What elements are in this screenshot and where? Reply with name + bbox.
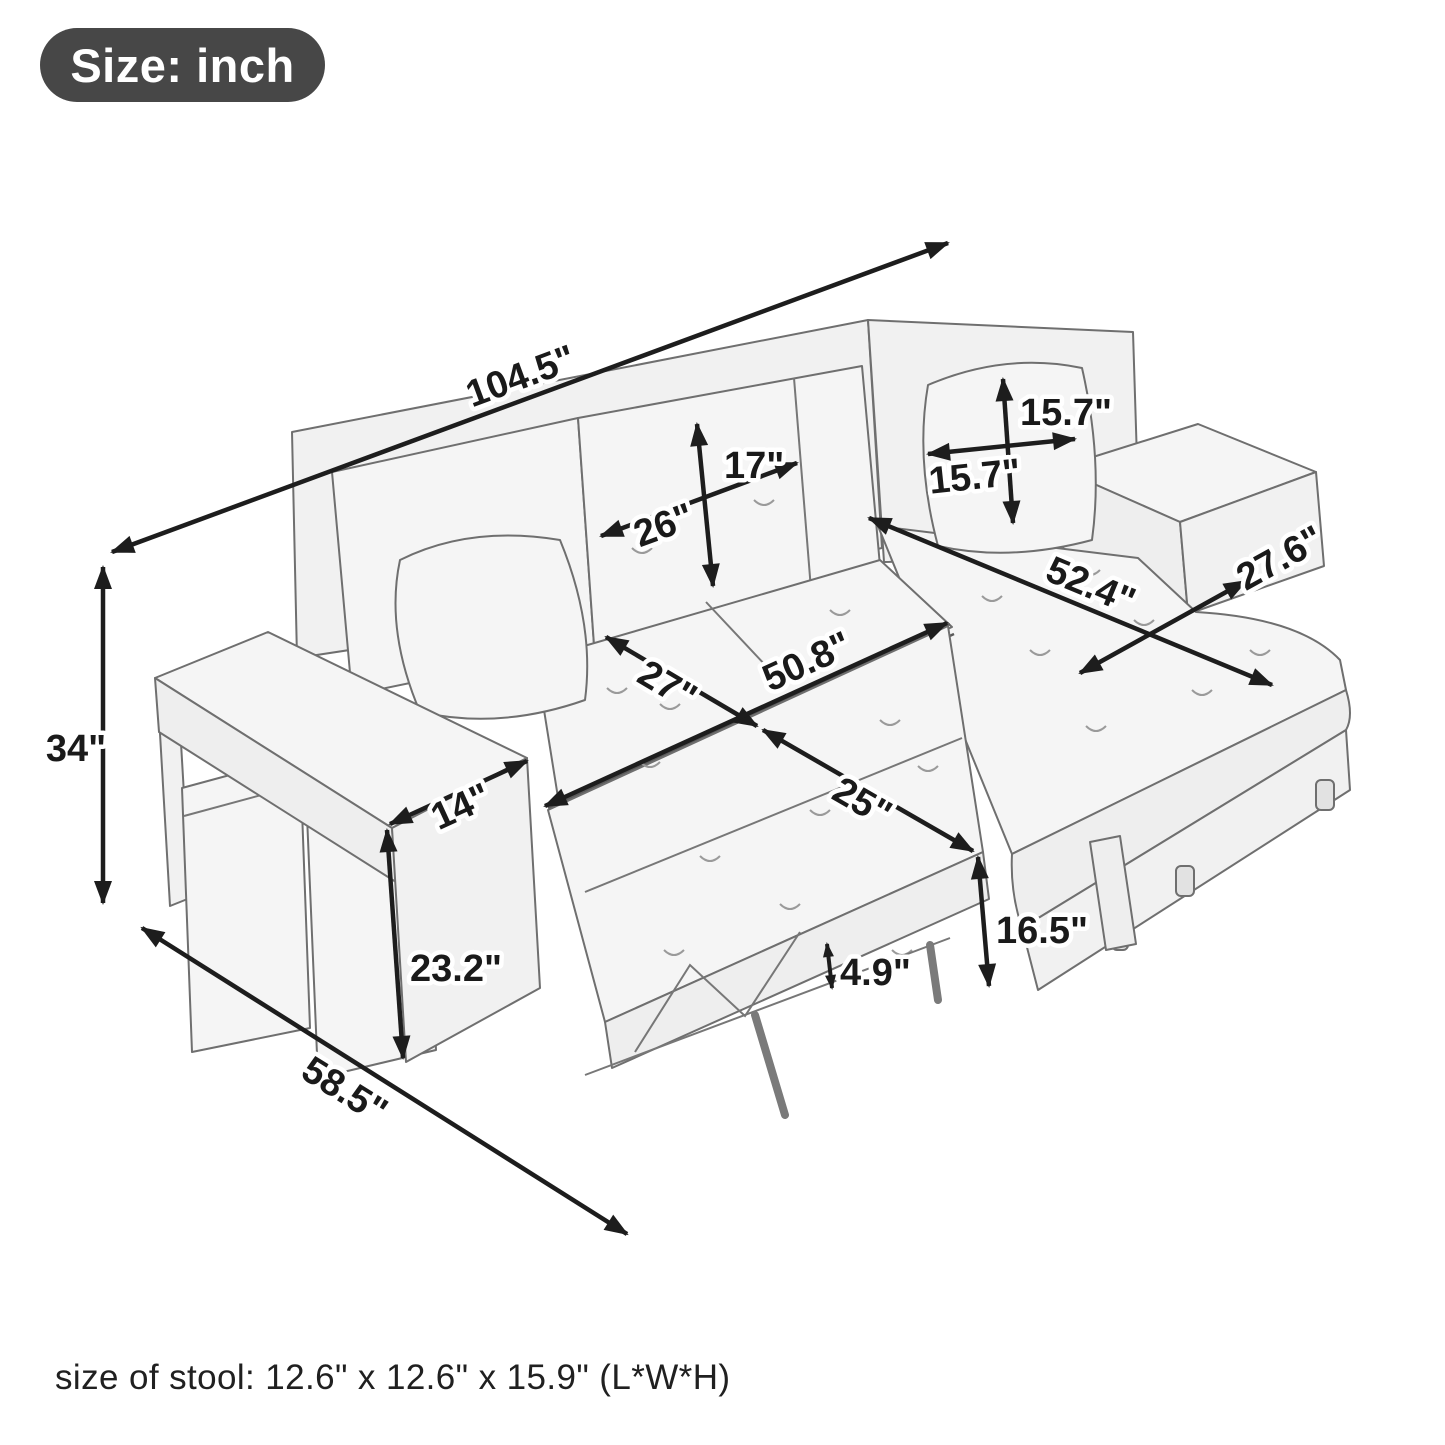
chaise-foot-right xyxy=(1316,780,1334,810)
chaise-foot-front xyxy=(1176,866,1194,896)
bed-frame-leg-right xyxy=(930,945,938,1000)
size-unit-badge-label: Size: inch xyxy=(70,38,294,93)
dim-label-pillow-height: 15.7" xyxy=(1020,392,1112,434)
dim-label-overall-height: 34" xyxy=(46,728,106,770)
sofa-dimension-diagram: 104.5" 34" 58.5" 17" 26" 15.7" 15.7" 52.… xyxy=(0,0,1445,1445)
size-unit-badge: Size: inch xyxy=(40,28,325,102)
pillow-left xyxy=(396,536,588,719)
dimension-diagram-page: 104.5" 34" 58.5" 17" 26" 15.7" 15.7" 52.… xyxy=(0,0,1445,1445)
dim-label-back-cushion-height: 17" xyxy=(724,445,784,487)
dim-label-bed-height: 16.5" xyxy=(996,910,1088,952)
dim-label-mattress-thickness: 4.9" xyxy=(840,952,911,994)
stool-size-note: size of stool: 12.6" x 12.6" x 15.9" (L*… xyxy=(55,1358,1355,1398)
sofa-sketch xyxy=(155,320,1350,1115)
bed-frame-leg-left xyxy=(755,1015,785,1115)
dim-label-armrest-height: 23.2" xyxy=(410,948,502,990)
